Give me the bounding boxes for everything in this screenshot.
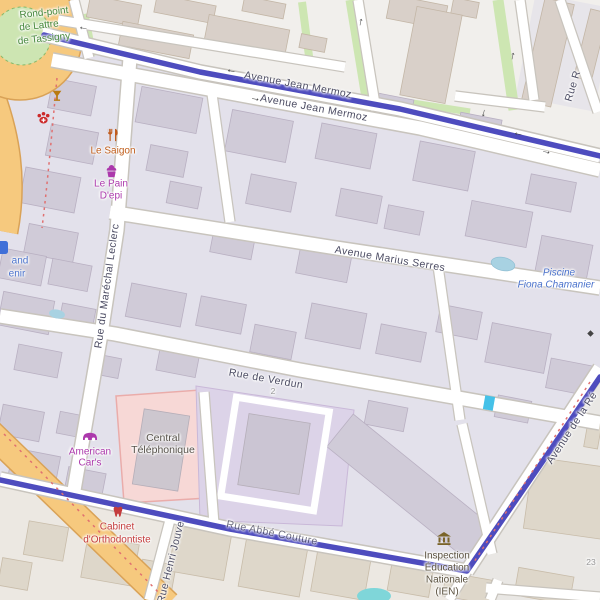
map[interactable]: Avenue Jean Mermoz Avenue Jean Mermoz Av…: [0, 0, 600, 600]
map-tiles: [0, 0, 600, 600]
